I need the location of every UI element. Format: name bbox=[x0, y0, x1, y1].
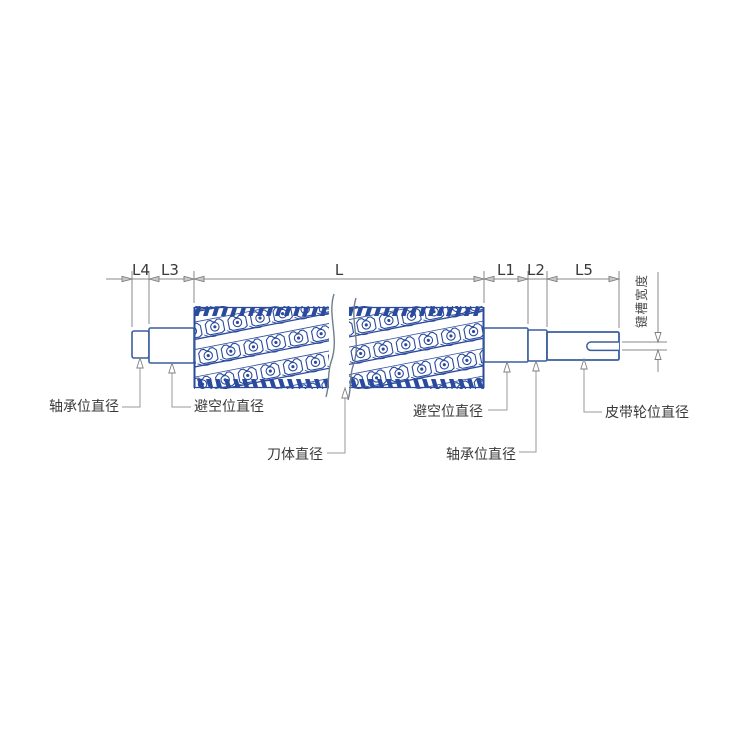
cutter-insert bbox=[140, 303, 164, 323]
cutter-insert bbox=[268, 415, 292, 435]
leader-arrow-up bbox=[533, 361, 539, 371]
leader-arrow-up bbox=[137, 358, 143, 368]
keyway-slot bbox=[587, 342, 619, 350]
callout-labels: 轴承位直径 避空位直径 刀体直径 避空位直径 轴承位直径 皮带轮位直径 bbox=[49, 398, 689, 463]
cutter-insert bbox=[473, 266, 497, 286]
cutter-insert bbox=[290, 411, 314, 431]
dim-label-l1: L1 bbox=[497, 261, 515, 279]
dim-label-l2: L2 bbox=[527, 261, 545, 279]
cutter-insert bbox=[200, 429, 224, 449]
cutter-insert bbox=[528, 310, 552, 330]
dim-arrow bbox=[122, 276, 132, 281]
cutter-insert bbox=[382, 283, 406, 303]
cutter-insert bbox=[138, 413, 162, 433]
cutter-insert bbox=[313, 407, 337, 427]
dim-label-l: L bbox=[335, 261, 344, 279]
cutter-insert bbox=[450, 270, 474, 290]
cutter-insert bbox=[144, 384, 168, 404]
cutter-insert bbox=[411, 250, 435, 270]
keyway-width-label: 键槽宽度 bbox=[634, 274, 649, 328]
flute-line bbox=[124, 230, 529, 309]
leader-bearing-right bbox=[519, 362, 536, 452]
cutter-insert bbox=[380, 394, 404, 414]
callout-bearing-right-label: 轴承位直径 bbox=[446, 446, 516, 463]
leader-arrow-up bbox=[504, 362, 510, 372]
cutter-insert bbox=[478, 237, 502, 257]
cutter-insert bbox=[534, 281, 558, 301]
cutter-insert bbox=[523, 228, 547, 248]
keyway-arrow-up bbox=[655, 350, 661, 360]
callout-bearing-left-label: 轴承位直径 bbox=[49, 398, 119, 415]
left-bearing-step bbox=[132, 331, 149, 358]
callout-clearance-right-label: 避空位直径 bbox=[413, 403, 483, 420]
cutter-insert bbox=[167, 380, 191, 400]
cutter-insert bbox=[343, 263, 367, 283]
left-clearance-step bbox=[149, 328, 194, 363]
cutter-insert bbox=[162, 298, 186, 318]
dim-label-l5: L5 bbox=[575, 261, 593, 279]
cutter-insert bbox=[155, 437, 179, 457]
cutter-insert bbox=[358, 398, 382, 418]
cutter-insert bbox=[253, 281, 277, 301]
cutter-insert bbox=[273, 387, 297, 407]
cutter-insert bbox=[360, 288, 384, 308]
right-clearance-step bbox=[484, 328, 528, 362]
leader-arrow-up bbox=[169, 363, 175, 373]
dim-arrow bbox=[484, 276, 494, 281]
cutter-insert bbox=[511, 286, 535, 306]
cutter-insert bbox=[388, 255, 412, 275]
cutter-insert bbox=[551, 305, 575, 325]
callout-pulley-label: 皮带轮位直径 bbox=[605, 404, 689, 421]
cutter-insert bbox=[493, 372, 517, 392]
keyway-arrow-down bbox=[655, 333, 661, 343]
cutter-insert bbox=[456, 241, 480, 261]
cutter-insert bbox=[245, 420, 269, 440]
cutter-insert bbox=[222, 424, 246, 444]
dim-arrow bbox=[194, 276, 204, 281]
cutter-insert bbox=[489, 290, 513, 310]
callout-clearance-left-label: 避空位直径 bbox=[194, 398, 264, 415]
cutter-insert bbox=[230, 285, 254, 305]
cutter-insert bbox=[365, 259, 389, 279]
cutter-insert bbox=[177, 433, 201, 453]
dim-label-l3: L3 bbox=[161, 261, 179, 279]
dim-arrow bbox=[609, 276, 619, 281]
cutter-insert bbox=[501, 233, 525, 253]
flute-line bbox=[153, 379, 558, 458]
cutter-insert bbox=[433, 246, 457, 266]
cutter-insert bbox=[405, 279, 429, 299]
dim-arrow bbox=[149, 276, 159, 281]
dim-label-l4: L4 bbox=[132, 261, 150, 279]
spiral-cutter-shaft-drawing: L4 L3 L L1 L2 L5 键槽宽度 轴承位直径 避空位直径 刀体直径 避… bbox=[0, 0, 730, 730]
cutter-insert bbox=[160, 409, 184, 429]
dim-arrow bbox=[547, 276, 557, 281]
cutter-insert bbox=[117, 307, 141, 327]
cutter-insert bbox=[335, 402, 359, 422]
right-bearing-step bbox=[528, 330, 547, 361]
callout-cutter-body-label: 刀体直径 bbox=[267, 446, 323, 463]
cutter-insert bbox=[538, 363, 562, 383]
cutter-insert bbox=[298, 272, 322, 292]
cutter-insert bbox=[428, 274, 452, 294]
drawing-svg: L4 L3 L L1 L2 L5 键槽宽度 轴承位直径 避空位直径 刀体直径 避… bbox=[0, 0, 730, 730]
